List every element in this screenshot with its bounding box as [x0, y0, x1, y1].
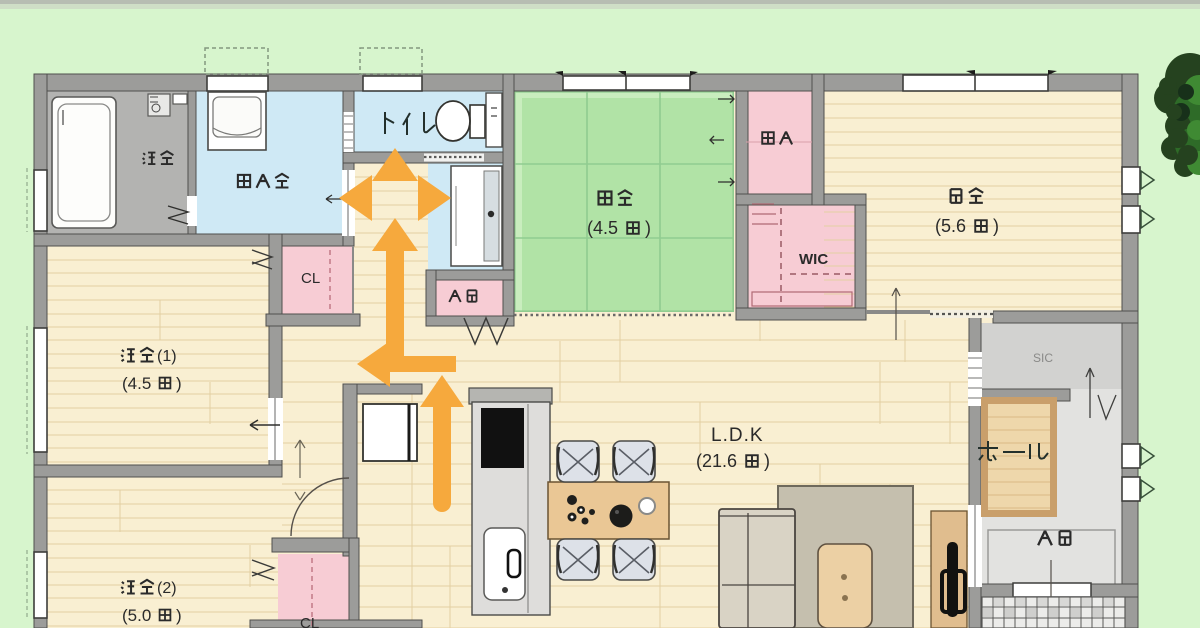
svg-text:): )	[764, 451, 770, 471]
svg-text:(4.5: (4.5	[587, 218, 618, 238]
svg-text:): )	[176, 374, 182, 393]
svg-text:L.D.K: L.D.K	[711, 425, 764, 446]
svg-text:(5.0: (5.0	[122, 606, 151, 625]
svg-text:(21.6: (21.6	[696, 451, 737, 471]
svg-text:WIC: WIC	[799, 251, 828, 268]
svg-text:): )	[176, 606, 182, 625]
svg-text:(5.6: (5.6	[935, 216, 966, 236]
svg-text:CL: CL	[300, 615, 319, 628]
svg-text:SIC: SIC	[1033, 351, 1053, 365]
svg-text:): )	[993, 216, 999, 236]
svg-text:(4.5: (4.5	[122, 374, 151, 393]
svg-text:CL: CL	[301, 270, 320, 287]
svg-text:(2): (2)	[157, 580, 177, 597]
svg-text:): )	[645, 218, 651, 238]
svg-text:(1): (1)	[157, 348, 177, 365]
